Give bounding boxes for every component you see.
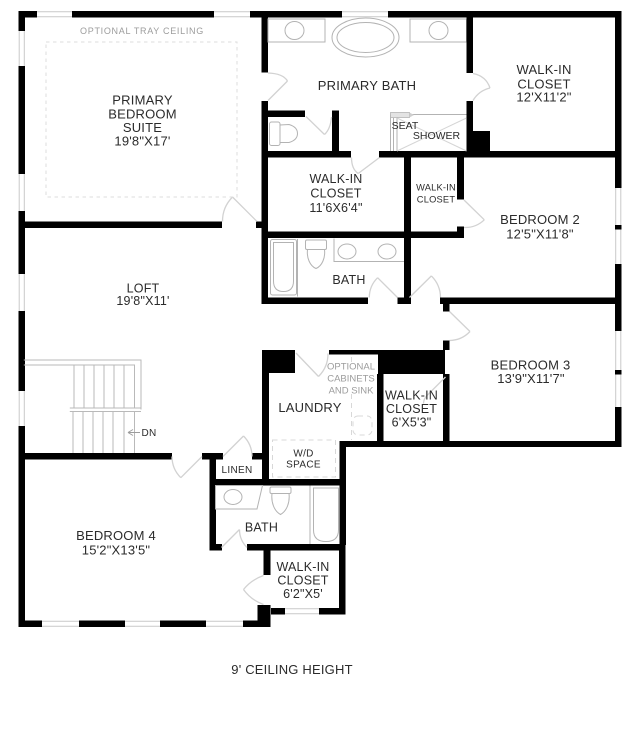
svg-text:19'8"X11': 19'8"X11' (116, 294, 169, 308)
svg-text:WALK-IN: WALK-IN (276, 560, 329, 574)
svg-text:WALK-IN: WALK-IN (416, 183, 456, 193)
svg-text:9' CEILING HEIGHT: 9' CEILING HEIGHT (231, 662, 352, 677)
svg-text:12'5"X11'8": 12'5"X11'8" (506, 227, 574, 242)
svg-text:BEDROOM 2: BEDROOM 2 (500, 212, 580, 227)
svg-text:12'X11'2": 12'X11'2" (516, 90, 571, 105)
svg-text:11'6X6'4": 11'6X6'4" (309, 201, 362, 215)
svg-text:CLOSET: CLOSET (277, 574, 328, 588)
svg-text:WALK-IN: WALK-IN (309, 172, 362, 186)
svg-text:SPACE: SPACE (286, 460, 321, 471)
svg-text:DN: DN (142, 428, 157, 439)
svg-text:PRIMARY BATH: PRIMARY BATH (318, 78, 416, 93)
svg-text:PRIMARY: PRIMARY (112, 93, 173, 108)
svg-text:19'8"X17': 19'8"X17' (114, 134, 170, 149)
svg-text:SHOWER: SHOWER (413, 130, 461, 142)
svg-text:LAUNDRY: LAUNDRY (278, 400, 341, 415)
svg-text:AND SINK: AND SINK (329, 386, 375, 397)
svg-text:BEDROOM 4: BEDROOM 4 (76, 528, 156, 543)
svg-text:CLOSET: CLOSET (386, 402, 437, 416)
svg-text:6'X5'3": 6'X5'3" (392, 416, 432, 430)
svg-text:BATH: BATH (245, 521, 278, 535)
svg-text:W/D: W/D (293, 449, 313, 460)
svg-text:13'9"X11'7": 13'9"X11'7" (497, 371, 565, 386)
svg-text:CABINETS: CABINETS (327, 374, 375, 385)
svg-text:CLOSET: CLOSET (417, 195, 456, 205)
svg-text:OPTIONAL TRAY CEILING: OPTIONAL TRAY CEILING (80, 26, 204, 36)
svg-text:WALK-IN: WALK-IN (385, 389, 438, 403)
svg-text:BATH: BATH (332, 273, 365, 287)
svg-text:WALK-IN: WALK-IN (516, 62, 571, 77)
svg-text:15'2"X13'5": 15'2"X13'5" (82, 543, 151, 558)
svg-text:OPTIONAL: OPTIONAL (327, 362, 375, 373)
svg-text:6'2"X5': 6'2"X5' (283, 587, 323, 601)
svg-text:CLOSET: CLOSET (310, 187, 361, 201)
svg-text:LINEN: LINEN (222, 465, 253, 476)
